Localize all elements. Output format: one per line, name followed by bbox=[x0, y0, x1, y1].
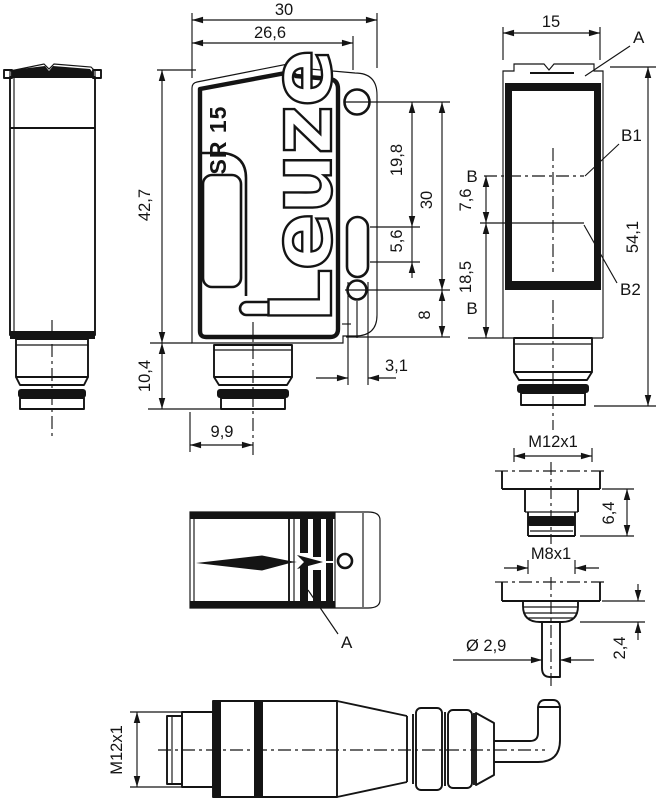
lens-slat bbox=[326, 519, 333, 561]
label-b-upper: B bbox=[466, 167, 477, 186]
body-outline bbox=[10, 77, 95, 335]
dim-m12-connector: M12x1 bbox=[528, 433, 578, 451]
cable-elbow-outer bbox=[494, 707, 560, 762]
m12-plug-view: M12x1 bbox=[108, 700, 560, 797]
cable-outlet-detail: Ø 2,9 2,4 bbox=[453, 577, 645, 688]
strain-relief-bulge bbox=[448, 710, 472, 788]
lens-slat bbox=[326, 563, 333, 601]
leader-line bbox=[585, 46, 630, 76]
label-a: A bbox=[633, 28, 645, 47]
dim-slot-length: 5,6 bbox=[388, 230, 406, 253]
leader-line bbox=[585, 144, 619, 176]
dim-plug-thread: M12x1 bbox=[108, 725, 126, 775]
dim-connector-offset: 9,9 bbox=[211, 423, 234, 441]
dim-connector-height: 10,4 bbox=[136, 360, 154, 392]
side-wall-left bbox=[505, 91, 512, 283]
dim-lower-hole-to-bottom: 8 bbox=[416, 310, 434, 319]
sensor-dimensional-drawing: SR 15 Leuze 30 26,6 42,7 10,4 9,9 3,1 19… bbox=[0, 0, 658, 800]
dim-axis-offset: 7,6 bbox=[457, 189, 475, 212]
bottom-edge-band bbox=[190, 601, 335, 608]
plug-taper bbox=[337, 701, 407, 797]
optical-cone bbox=[196, 556, 297, 571]
label-a-top-view: A bbox=[341, 633, 353, 652]
dim-hole-to-slot: 19,8 bbox=[388, 144, 406, 176]
logo-text: Leuze bbox=[252, 51, 352, 324]
label-b1: B1 bbox=[621, 126, 642, 145]
dim-total-height: 54,1 bbox=[624, 221, 642, 253]
lens-slat bbox=[300, 519, 308, 553]
dim-overall-width: 30 bbox=[275, 1, 293, 19]
technical-drawing-page: SR 15 Leuze 30 26,6 42,7 10,4 9,9 3,1 19… bbox=[0, 0, 658, 800]
top-band bbox=[505, 83, 601, 91]
pivot-hole bbox=[338, 554, 352, 568]
top-edge-band bbox=[190, 512, 335, 519]
dim-m8-length: 6,4 bbox=[600, 502, 618, 525]
side-wall-right bbox=[594, 91, 601, 283]
top-view: A bbox=[190, 512, 380, 652]
m8-connector-detail: 6,4 M8x1 bbox=[495, 462, 634, 574]
lens-slat bbox=[313, 519, 321, 557]
dim-body-height: 42,7 bbox=[136, 189, 154, 221]
dim-face-width: 26,6 bbox=[254, 24, 286, 42]
leader-line bbox=[308, 590, 338, 634]
label-b2: B2 bbox=[620, 280, 641, 299]
nut-band bbox=[213, 701, 221, 797]
dim-grommet-height: 2,4 bbox=[611, 637, 629, 660]
dim-slot-width: 3,1 bbox=[385, 357, 408, 375]
side-view-dimensions: 15 A B1 B2 B B 7,6 18,5 54,1 M12x1 bbox=[457, 13, 656, 462]
side-view-right bbox=[480, 64, 603, 430]
front-view: SR 15 Leuze bbox=[192, 51, 377, 458]
label-b-lower: B bbox=[466, 299, 477, 318]
dim-cable-diameter: Ø 2,9 bbox=[466, 637, 506, 655]
dim-axis-to-bottom: 18,5 bbox=[457, 261, 475, 293]
side-view-left bbox=[4, 64, 101, 440]
lens-slat bbox=[313, 570, 321, 601]
strain-relief-end bbox=[476, 713, 494, 785]
dim-m8-connector: M8x1 bbox=[531, 545, 571, 563]
cable-elbow-inner bbox=[494, 707, 538, 741]
lens-window bbox=[203, 175, 241, 287]
nut-band bbox=[254, 701, 262, 797]
lens-slat bbox=[300, 566, 308, 601]
plug-body bbox=[262, 701, 337, 797]
strain-relief-bulge bbox=[416, 708, 442, 790]
bottom-band bbox=[505, 281, 601, 290]
optical-arrowhead bbox=[297, 555, 323, 569]
model-text: SR 15 bbox=[205, 106, 231, 175]
dim-depth: 15 bbox=[542, 13, 560, 31]
dim-hole-spacing: 30 bbox=[418, 191, 436, 209]
cable-end-cap bbox=[538, 700, 560, 707]
